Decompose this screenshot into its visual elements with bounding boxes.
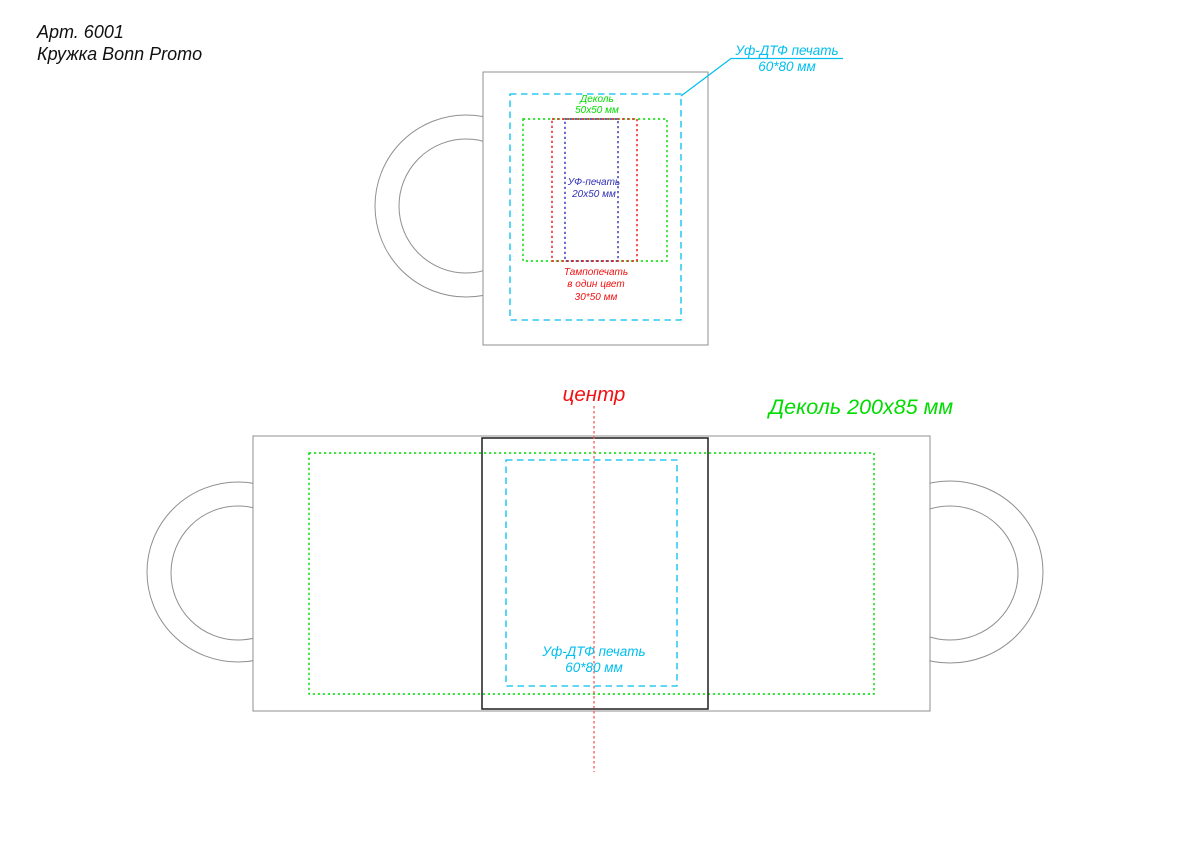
product-name: Кружка Bonn Promo — [37, 43, 202, 65]
top-pad-label-size: 30*50 мм — [564, 292, 628, 304]
top-pad-label-name: Тампопечать — [564, 267, 628, 279]
top-pad-print-label: Тампопечать в один цвет 30*50 мм — [564, 267, 628, 304]
top-uv-label-name: УФ-печать — [568, 177, 620, 189]
bottom-view-drawing — [147, 406, 1043, 772]
bottom-decal-label: Деколь 200x85 мм — [769, 395, 953, 420]
bottom-uv-dtf-label-size: 60*80 мм — [542, 660, 645, 676]
sheet-title: Арт. 6001 Кружка Bonn Promo — [37, 21, 202, 65]
top-decal-label-size: 50x50 мм — [575, 106, 619, 117]
bottom-uv-dtf-label: Уф-ДТФ печать 60*80 мм — [542, 644, 645, 676]
technical-drawing — [0, 0, 1191, 842]
mug-print-template-sheet: Арт. 6001 Кружка Bonn Promo Деколь 50x50… — [0, 0, 1191, 842]
top-pad-label-color: в один цвет — [564, 279, 628, 291]
top-uv-dtf-callout-size: 60*80 мм — [731, 59, 843, 75]
article-number: Арт. 6001 — [37, 21, 202, 43]
top-uv-dtf-callout-name: Уф-ДТФ печать — [731, 43, 843, 59]
top-uv-label-size: 20x50 мм — [568, 189, 620, 201]
top-decal-label: Деколь 50x50 мм — [575, 95, 619, 116]
top-uv-print-label: УФ-печать 20x50 мм — [568, 177, 620, 200]
bottom-uv-dtf-label-name: Уф-ДТФ печать — [542, 644, 645, 660]
top-decal-label-name: Деколь — [575, 95, 619, 106]
center-marker-label: центр — [563, 383, 626, 407]
top-uv-dtf-callout: Уф-ДТФ печать 60*80 мм — [731, 43, 843, 75]
